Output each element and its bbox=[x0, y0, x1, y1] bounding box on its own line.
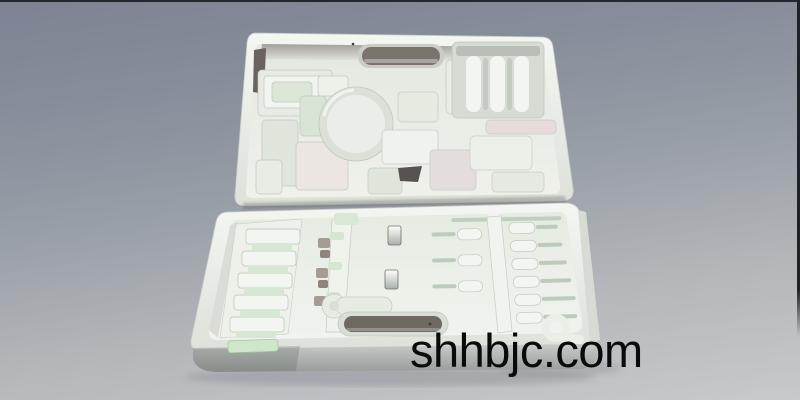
tool-case-illustration bbox=[0, 0, 800, 400]
lid-handle-slot bbox=[358, 44, 444, 68]
watermark-text: shhbjc.com bbox=[410, 327, 643, 374]
tray-latch bbox=[228, 339, 278, 353]
product-photo-tool-case: shhbjc.com bbox=[0, 0, 800, 400]
lid-right-compartment bbox=[452, 42, 544, 118]
image-border-top bbox=[0, 0, 800, 2]
case-lid bbox=[235, 33, 573, 209]
lid-dark-wedge bbox=[398, 166, 422, 182]
lid-speck bbox=[352, 43, 355, 46]
